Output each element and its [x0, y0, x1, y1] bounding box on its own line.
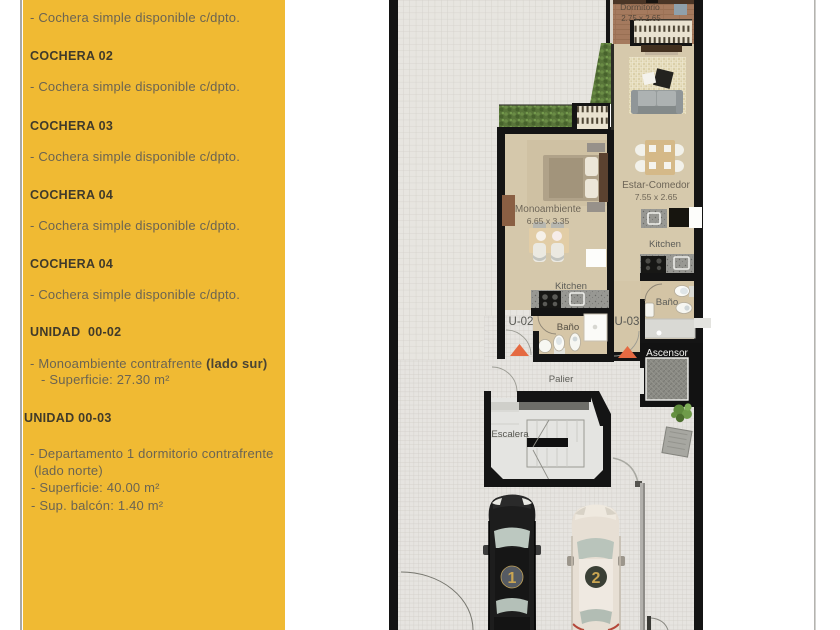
svg-text:Escalera: Escalera [491, 429, 529, 440]
svg-text:U-03: U-03 [615, 316, 640, 328]
svg-text:Baño: Baño [557, 322, 579, 333]
svg-text:2.75 x 2.65: 2.75 x 2.65 [621, 14, 661, 23]
svg-text:Ascensor: Ascensor [646, 348, 688, 359]
svg-text:6.65 x 3.35: 6.65 x 3.35 [527, 216, 570, 226]
svg-text:Kitchen: Kitchen [649, 239, 681, 250]
svg-text:1: 1 [508, 570, 517, 587]
svg-text:Kitchen: Kitchen [555, 281, 587, 292]
svg-text:7.55 x 2.65: 7.55 x 2.65 [635, 192, 678, 202]
svg-text:Estar-Comedor: Estar-Comedor [622, 180, 690, 191]
svg-text:U-02: U-02 [509, 316, 534, 328]
svg-text:Baño: Baño [656, 297, 678, 308]
svg-text:2: 2 [592, 570, 601, 587]
svg-text:Dormitorio: Dormitorio [620, 2, 660, 12]
svg-text:Palier: Palier [549, 374, 574, 385]
svg-text:Monoambiente: Monoambiente [515, 204, 582, 215]
